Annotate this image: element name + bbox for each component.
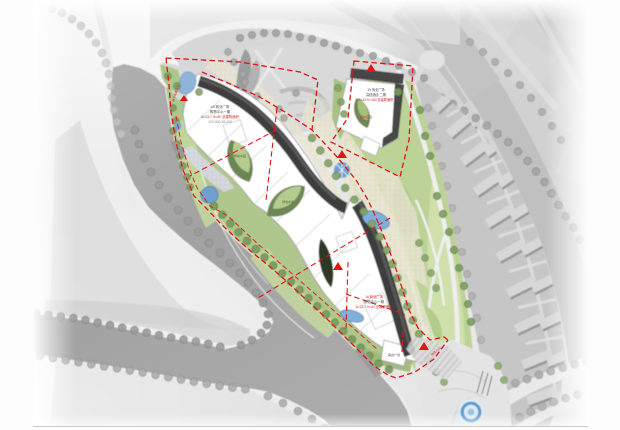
svg-text:美食广场: 美食广场 — [388, 352, 400, 357]
svg-text:绿地中庭: 绿地中庭 — [234, 153, 246, 158]
svg-text:1# 商业广场: 1# 商业广场 — [365, 294, 383, 299]
svg-text:120,000-26,000: 120,000-26,000 — [208, 120, 232, 124]
svg-text:19 商业广场: 19 商业广场 — [367, 87, 384, 92]
svg-text:绿地中庭: 绿地中庭 — [282, 199, 294, 204]
svg-text:购物中心一期: 购物中心一期 — [210, 109, 231, 114]
svg-text:高档酒店 二期: 高档酒店 二期 — [366, 92, 386, 97]
svg-text:A=23 H=160 总建筑面积: A=23 H=160 总建筑面积 — [359, 97, 395, 102]
svg-text:16 商业广场: 16 商业广场 — [211, 104, 230, 109]
svg-text:A=23.7 H=50 总建筑面积: A=23.7 H=50 总建筑面积 — [201, 114, 239, 119]
svg-text:A=23.7 H=24 总建筑面积: A=23.7 H=24 总建筑面积 — [356, 304, 394, 309]
svg-text:购物中心一期: 购物中心一期 — [364, 299, 384, 304]
svg-text:空中花园: 空中花园 — [360, 114, 372, 119]
